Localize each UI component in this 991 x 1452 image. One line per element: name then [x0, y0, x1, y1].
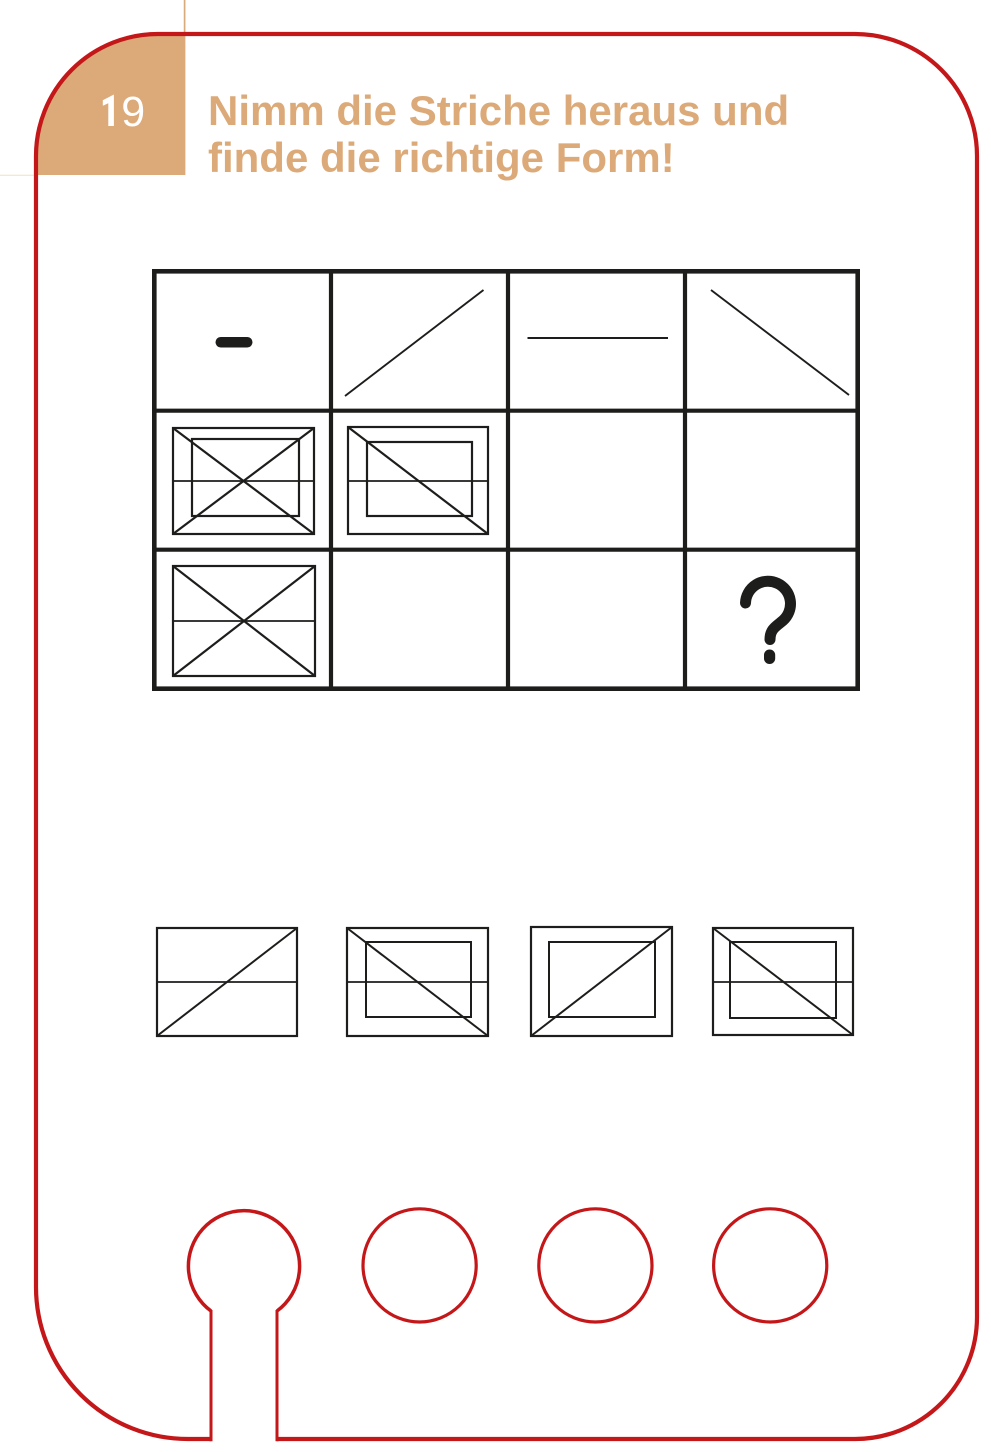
svg-text:9: 9: [121, 88, 145, 136]
svg-text:Nimm die Striche heraus und: Nimm die Striche heraus und: [208, 87, 789, 134]
svg-text:finde die richtige Form!: finde die richtige Form!: [208, 134, 675, 181]
